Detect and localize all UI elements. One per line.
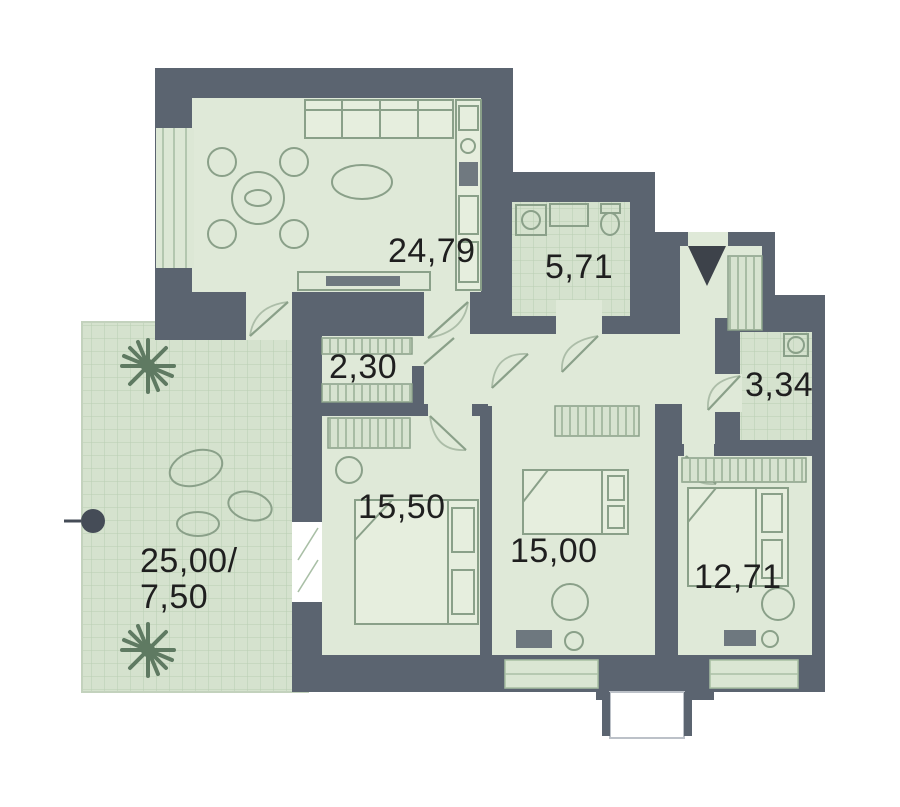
balcony-sill-bedroom-2 — [505, 660, 598, 688]
terrace-door-bedroom-1 — [292, 522, 322, 602]
terrace-area-label-line1: 25,00/ — [140, 542, 238, 580]
living-room-area-label: 24,79 — [388, 232, 476, 270]
section-marker-icon — [64, 509, 105, 533]
floor-plan: 24,79 5,71 2,30 3,34 15,50 15,00 12,71 2… — [0, 0, 900, 807]
bedroom-3-area-label: 12,71 — [694, 558, 782, 596]
terrace — [82, 322, 308, 692]
terrace-area-label-line2: 7,50 — [140, 578, 208, 616]
living-window — [156, 128, 194, 268]
entry-shoe-cabinet — [728, 256, 762, 330]
bathroom-area-label: 5,71 — [545, 248, 613, 286]
bottom-shaft — [602, 692, 692, 738]
wc-area-label: 3,34 — [745, 366, 813, 404]
balcony-sill-bedroom-3 — [710, 660, 798, 688]
terrace-plant-icon — [122, 624, 174, 676]
floor-plan-canvas: 24,79 5,71 2,30 3,34 15,50 15,00 12,71 2… — [0, 0, 900, 807]
bedroom-1-area-label: 15,50 — [358, 488, 446, 526]
hallway-floor — [424, 334, 715, 404]
bedroom-2-area-label: 15,00 — [510, 532, 598, 570]
terrace-plant-icon — [122, 340, 174, 392]
closet-area-label: 2,30 — [329, 348, 397, 386]
